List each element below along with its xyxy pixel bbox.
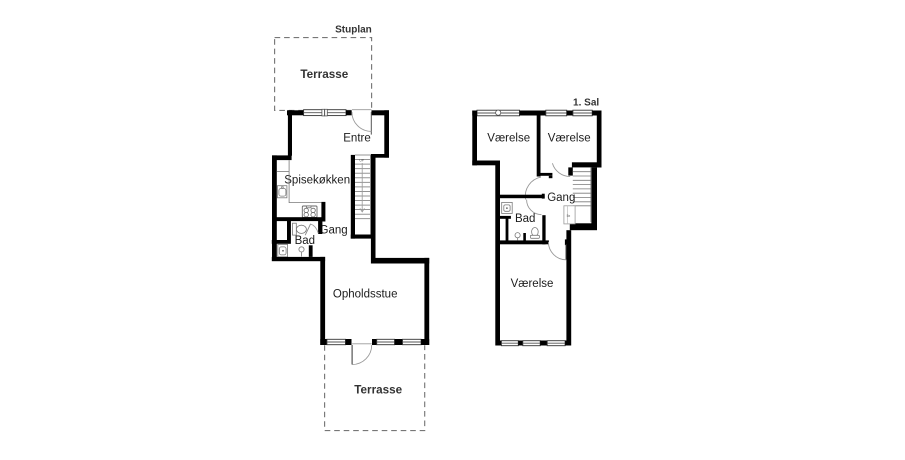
svg-text:Opholdsstue: Opholdsstue [333,288,398,300]
svg-text:Gang: Gang [320,225,348,237]
svg-text:5x: 5x [567,214,571,218]
svg-text:Stuplan: Stuplan [335,25,372,36]
svg-text:Spisekøkken: Spisekøkken [284,175,350,187]
svg-text:Værelse: Værelse [487,133,530,145]
svg-text:Værelse: Værelse [511,278,554,290]
svg-text:UP: UP [359,159,364,163]
svg-text:Terrasse: Terrasse [354,384,402,397]
svg-text:Entre: Entre [343,133,371,145]
svg-text:1. Sal: 1. Sal [573,97,599,108]
svg-text:Bad: Bad [515,213,535,225]
svg-text:Terrasse: Terrasse [300,68,348,81]
svg-text:Værelse: Værelse [548,133,591,145]
svg-text:Bad: Bad [295,235,315,247]
svg-text:Gang: Gang [547,192,575,204]
